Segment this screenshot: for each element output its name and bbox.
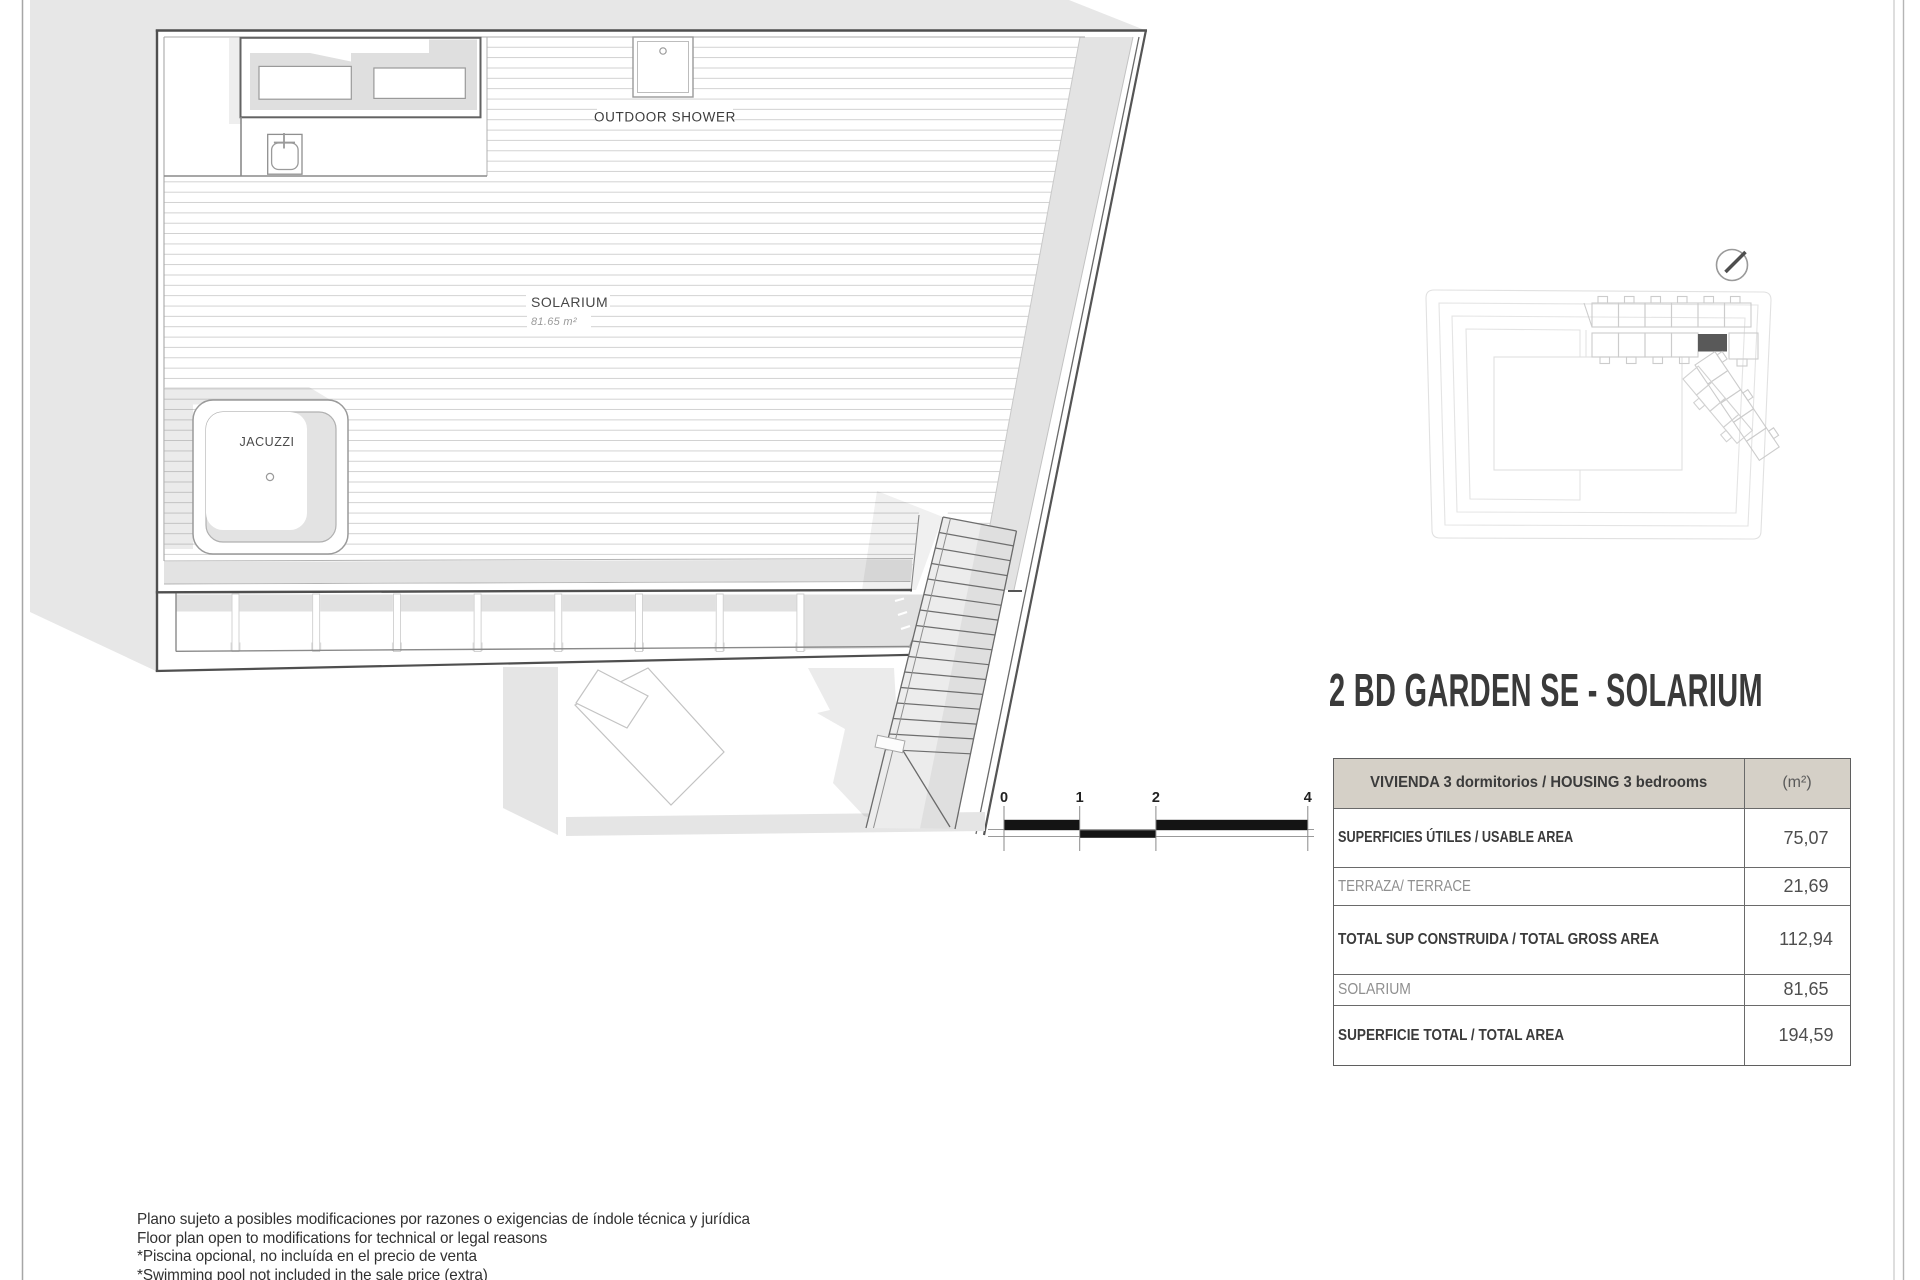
svg-text:1: 1 xyxy=(1076,790,1084,806)
svg-text:SOLARIUM: SOLARIUM xyxy=(531,294,608,310)
svg-text:4: 4 xyxy=(1304,790,1312,806)
svg-text:2: 2 xyxy=(1152,790,1160,806)
svg-text:OUTDOOR SHOWER: OUTDOOR SHOWER xyxy=(594,110,736,125)
svg-text:81.65 m²: 81.65 m² xyxy=(531,316,577,328)
svg-text:0: 0 xyxy=(1000,790,1008,806)
svg-text:JACUZZI: JACUZZI xyxy=(240,435,295,449)
